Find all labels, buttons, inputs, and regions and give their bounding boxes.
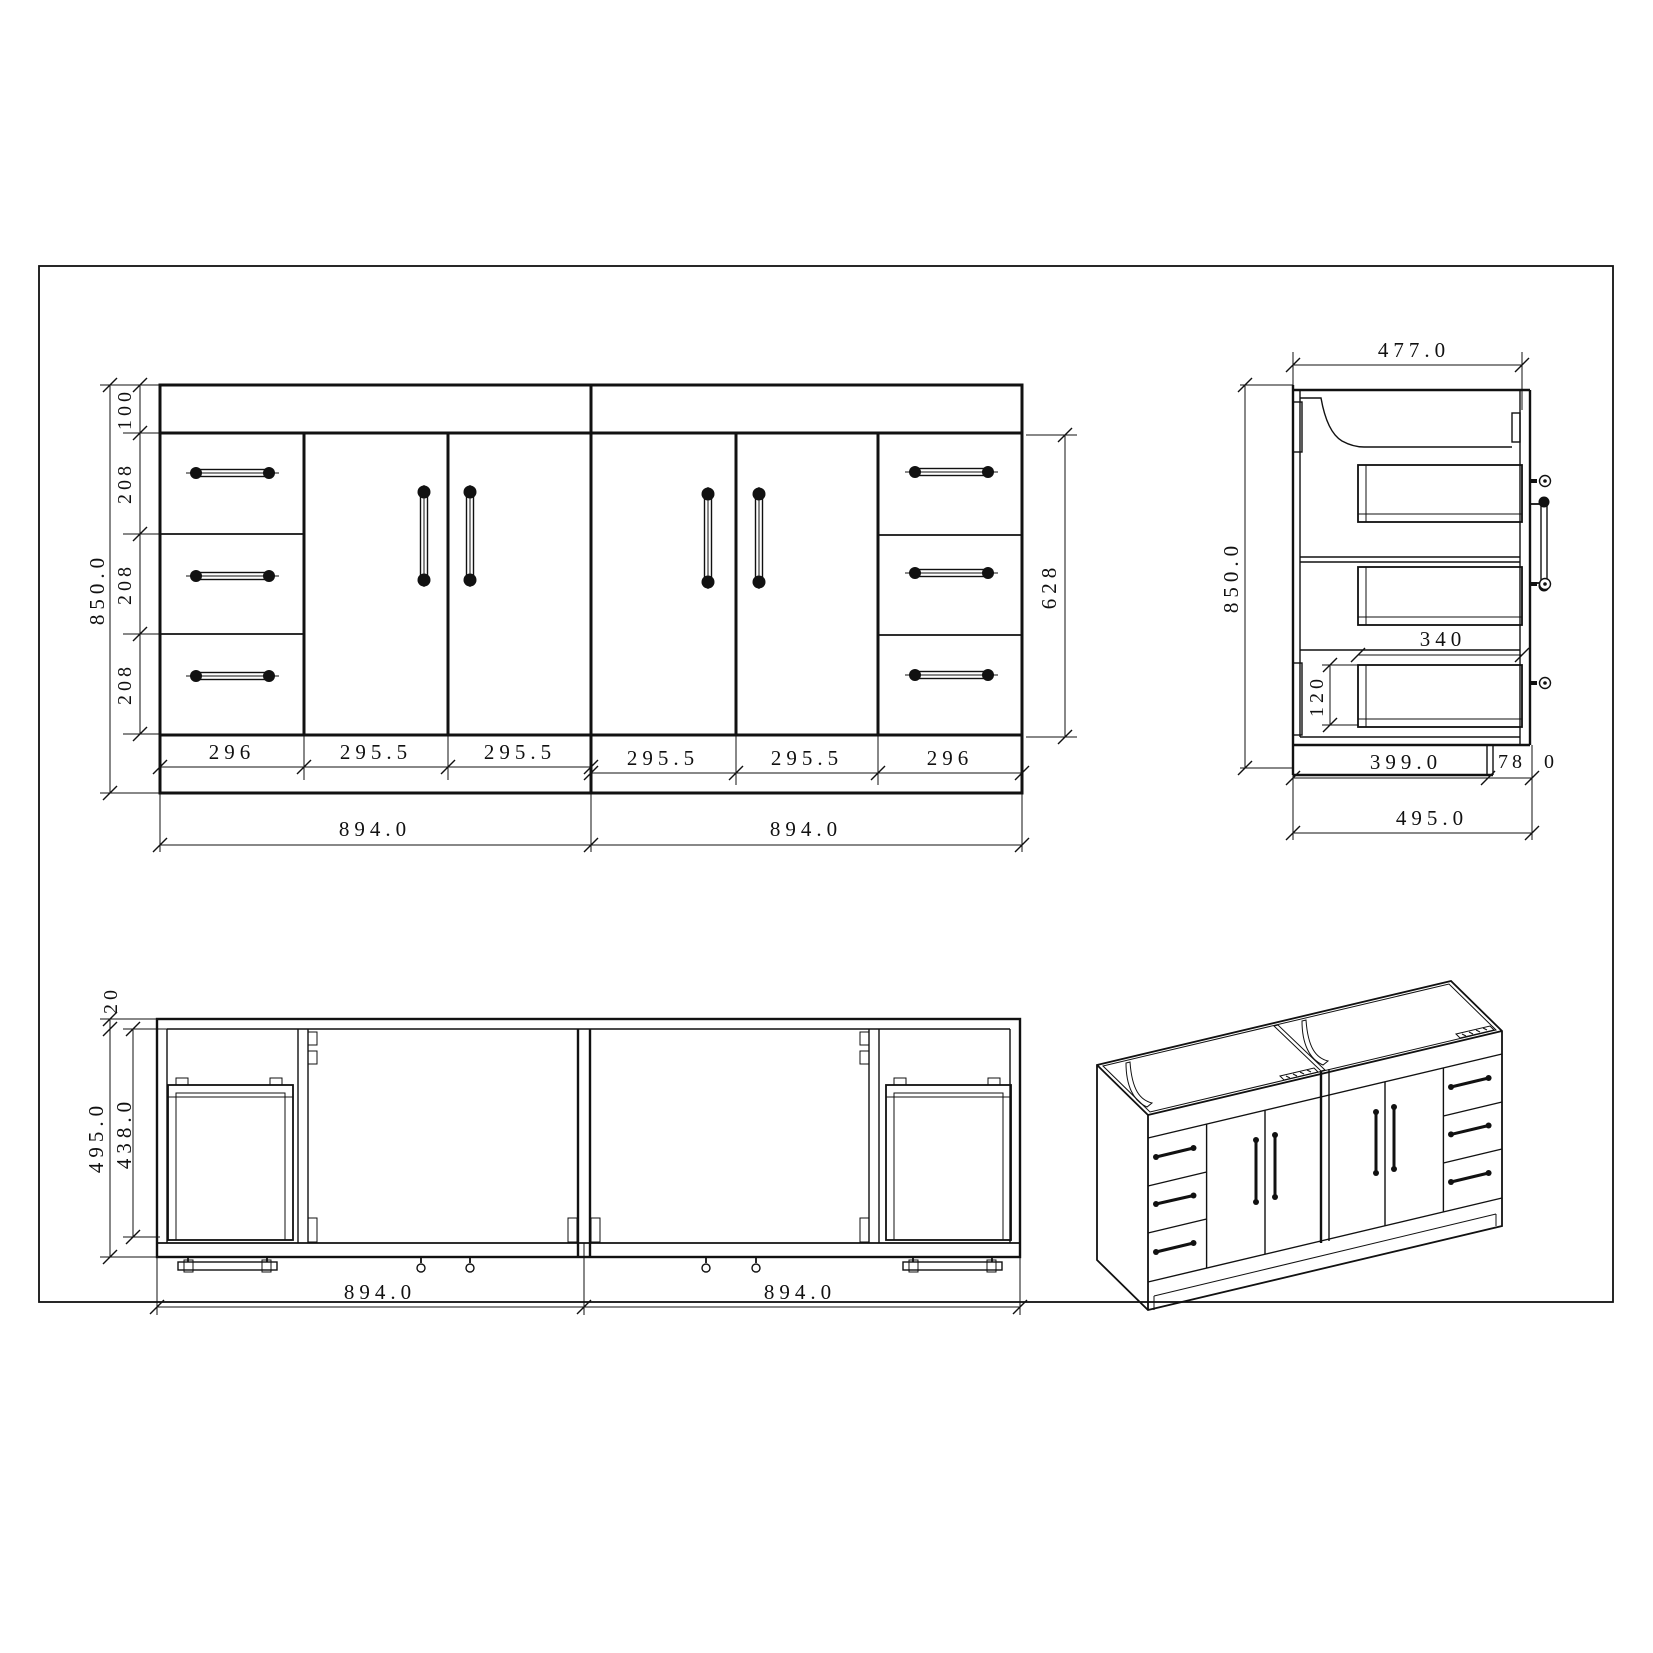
hinge-icon <box>308 1051 317 1064</box>
door-handle-iso <box>1373 1109 1379 1176</box>
hinge-icon <box>568 1218 577 1242</box>
plan-handles <box>178 1257 1002 1272</box>
hinge-icon <box>308 1032 317 1045</box>
drawing-sheet: 850.0 100 208 208 208 628 296 295.5 295.… <box>0 0 1653 1653</box>
drawer-handles-right <box>905 466 998 681</box>
front-view-linework <box>160 385 1022 793</box>
door-knob-top <box>702 1257 710 1272</box>
dim-front-module-left: 894.0 <box>339 817 411 841</box>
drawer-handle-iso <box>1153 1240 1197 1255</box>
door-handle <box>464 485 477 587</box>
dim-plan-module-left: 894.0 <box>344 1280 416 1304</box>
hinge-icon <box>860 1051 869 1064</box>
dim-side-overall-height: 850.0 <box>1219 541 1243 613</box>
dim-front-w2: 295.5 <box>340 740 412 764</box>
dim-front-overall-height: 850.0 <box>85 553 109 625</box>
dim-front-w6: 296 <box>927 746 974 770</box>
iso-linework <box>1097 981 1502 1310</box>
front-dimensions: 850.0 100 208 208 208 628 296 295.5 295.… <box>85 378 1077 852</box>
drawer-knob <box>1531 678 1551 689</box>
dim-side-top-width: 477.0 <box>1378 338 1450 362</box>
hinge-icon <box>308 1218 317 1242</box>
front-view: 850.0 100 208 208 208 628 296 295.5 295.… <box>85 378 1077 852</box>
side-dimensions: 477.0 850.0 340 120 399.0 78 0 <box>1219 338 1558 840</box>
side-view-linework <box>1293 385 1530 775</box>
dim-plan-overall-depth: 495.0 <box>84 1101 108 1173</box>
door-knob-top <box>417 1257 425 1272</box>
drawer-knob <box>1531 579 1551 590</box>
hinge-icon <box>860 1218 869 1242</box>
dim-front-module-right: 894.0 <box>770 817 842 841</box>
drawer-handle-iso <box>1153 1193 1197 1208</box>
drawer-handle <box>186 467 279 479</box>
door-handle-iso <box>1272 1132 1278 1200</box>
drawer-handles-left <box>186 467 279 682</box>
dim-front-top-rail: 100 <box>114 388 136 430</box>
door-handle <box>753 487 766 589</box>
drawer-handle-iso <box>1448 1170 1492 1185</box>
drawer-handle-iso <box>1153 1145 1197 1160</box>
hinge-icon <box>591 1218 600 1242</box>
dim-plan-back-rail: 20 <box>100 986 122 1014</box>
dim-front-drawer3: 208 <box>114 663 136 705</box>
dim-front-w1: 296 <box>209 740 256 764</box>
drawer-handle <box>905 466 998 478</box>
side-view: 477.0 850.0 340 120 399.0 78 0 <box>1219 338 1558 840</box>
drawer-knob <box>1531 476 1551 487</box>
dim-front-drawer2: 208 <box>114 563 136 605</box>
sink-bracket <box>1302 1020 1328 1065</box>
door-knob-top <box>466 1257 474 1272</box>
dim-plan-module-right: 894.0 <box>764 1280 836 1304</box>
dim-side-drawer-front-height: 120 <box>1306 675 1328 717</box>
cad-drawing: 850.0 100 208 208 208 628 296 295.5 295.… <box>0 0 1653 1653</box>
dim-front-w4: 295.5 <box>627 746 699 770</box>
dim-side-overall-depth: 495.0 <box>1396 806 1468 830</box>
dim-plan-inner-depth: 438.0 <box>112 1097 136 1169</box>
door-handle <box>702 487 715 589</box>
door-handle-iso <box>1253 1137 1259 1205</box>
drawer-handle-iso <box>1448 1123 1492 1138</box>
dim-front-w3: 295.5 <box>484 740 556 764</box>
dim-front-w5: 295.5 <box>771 746 843 770</box>
dim-side-bottom-inner: 399.0 <box>1370 750 1442 774</box>
drawer-handle <box>905 669 998 681</box>
drawer-handle <box>186 570 279 582</box>
drawer-handle <box>186 670 279 682</box>
door-handle-iso <box>1391 1104 1397 1172</box>
door-handle-side <box>1530 497 1550 592</box>
iso-view <box>1097 981 1502 1310</box>
door-handle <box>418 485 431 587</box>
door-knob-top <box>752 1257 760 1272</box>
plan-view-linework <box>157 1019 1020 1257</box>
dim-front-drawer1: 208 <box>114 462 136 504</box>
sink-bracket <box>1126 1062 1152 1107</box>
drawer-handle-iso <box>1448 1075 1492 1090</box>
dim-side-bottom-front-tail: 0 <box>1544 751 1558 773</box>
plan-view: 20 495.0 438.0 894.0 894.0 <box>84 986 1027 1315</box>
drawer-handle-top <box>903 1257 1002 1272</box>
dim-side-drawer-depth: 340 <box>1420 627 1467 651</box>
hinge-icon <box>860 1032 869 1045</box>
drawer-handle <box>905 567 998 579</box>
drawer-handle-top <box>178 1257 277 1272</box>
dim-front-opening: 628 <box>1037 563 1061 610</box>
side-handles <box>1530 476 1551 689</box>
dim-side-bottom-front: 78 <box>1498 751 1526 773</box>
